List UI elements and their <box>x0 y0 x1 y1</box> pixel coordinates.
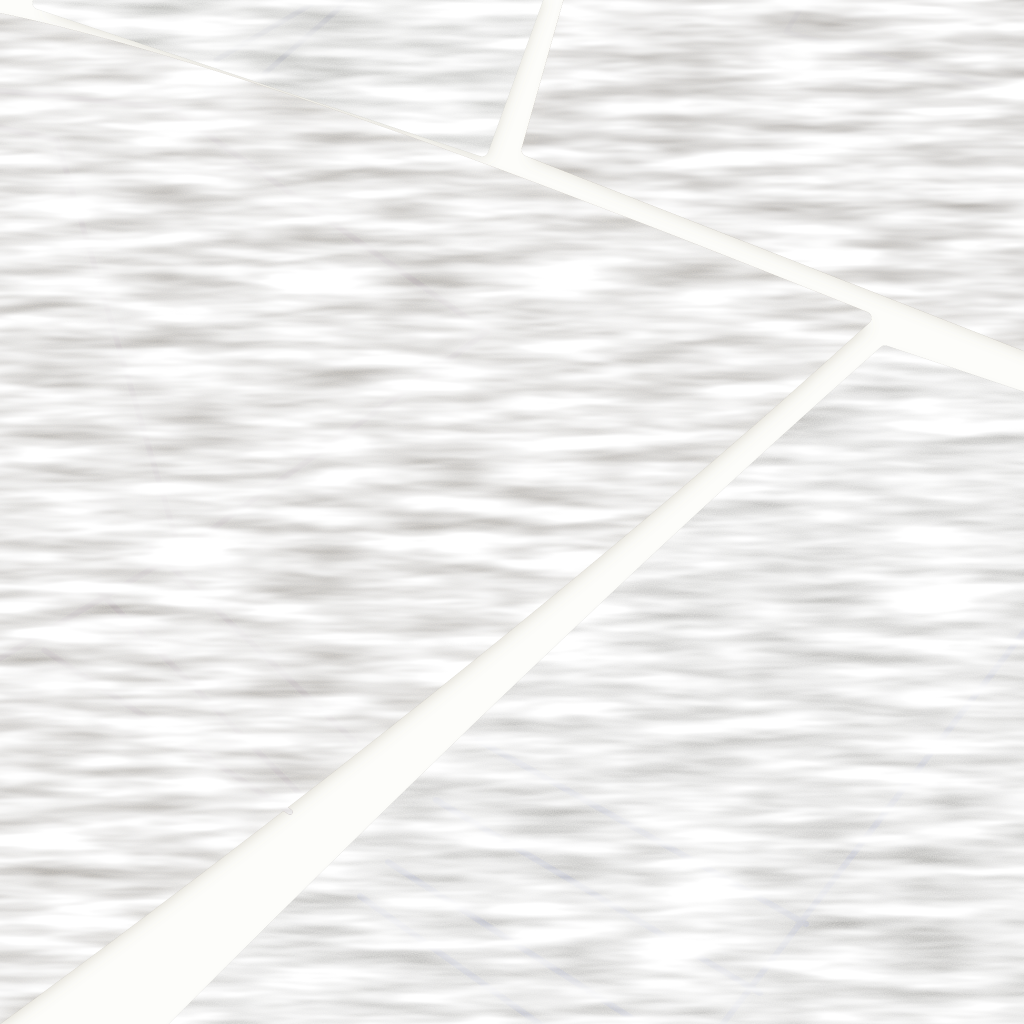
rug-scene-canvas <box>0 0 1024 1024</box>
rug-photo <box>0 0 1024 1024</box>
